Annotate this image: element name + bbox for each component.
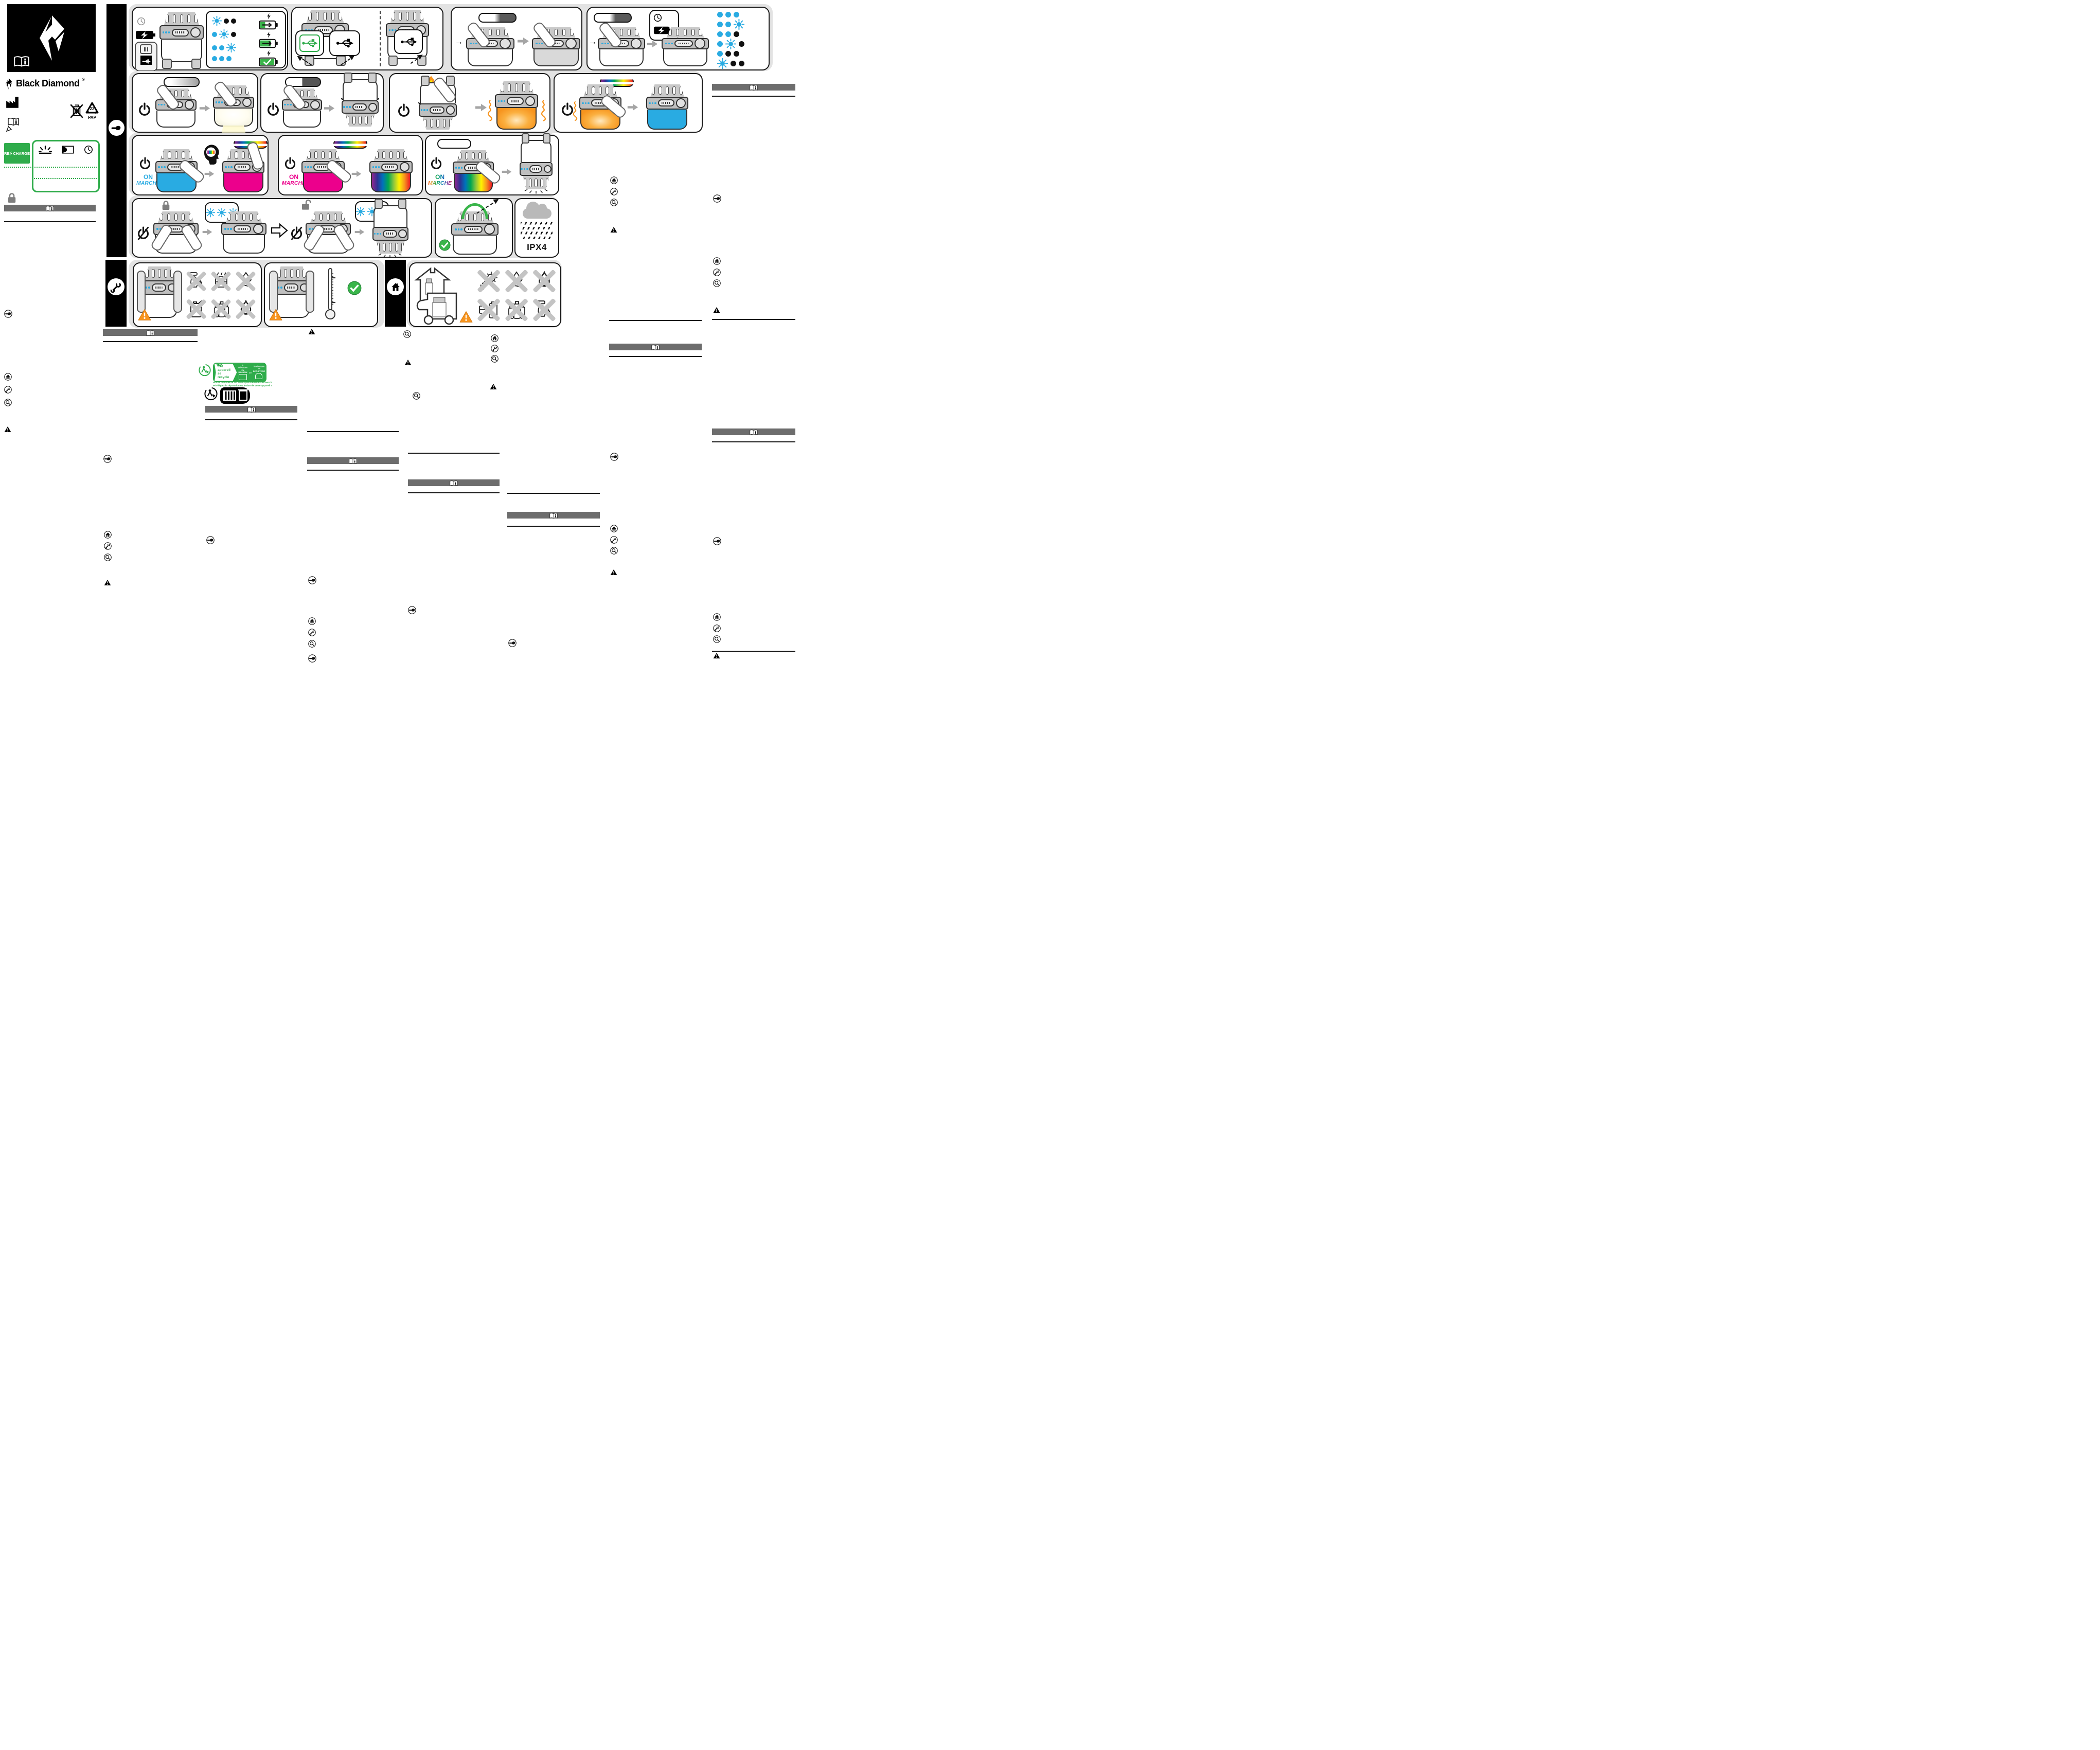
- panel-color-select: ON MARCHE: [132, 135, 269, 195]
- book-info-icon: [651, 344, 660, 350]
- warning-icon: [104, 579, 111, 586]
- hand-icon: [308, 576, 316, 584]
- section-header-bar: [712, 84, 795, 91]
- panel-handle: [435, 198, 513, 258]
- lantern-indicating: [662, 27, 709, 66]
- house-icon: [4, 373, 12, 381]
- power-icon: [430, 156, 442, 171]
- rule: [408, 453, 500, 454]
- next-arrow-icon: [646, 40, 659, 48]
- magnifier-icon: [4, 399, 12, 406]
- lock-icon: [7, 192, 16, 204]
- magnifier-icon: [610, 199, 618, 206]
- recycle-claim: FR Cet appareil se recycle: [215, 364, 237, 381]
- rule: [307, 431, 399, 432]
- read-manual-icon: [13, 56, 30, 68]
- house-icon: [713, 613, 721, 621]
- wrench-icon: [110, 281, 122, 293]
- no-liquids-icon: [235, 267, 257, 293]
- panel-color-mode: [554, 73, 703, 133]
- hand-icon: [308, 654, 316, 663]
- rain-cloud-icon: [523, 208, 551, 219]
- panel-dimming: →: [451, 7, 582, 70]
- no-solvents-icon: [210, 295, 233, 322]
- triman-paper-icon: [204, 387, 218, 401]
- house-icon: [610, 525, 618, 532]
- rule: [4, 221, 96, 222]
- hand-icon: [111, 122, 122, 134]
- divider: [380, 11, 381, 66]
- rule: [103, 341, 198, 342]
- battery-level-full: [258, 57, 279, 67]
- section-header-bar: [4, 205, 96, 211]
- usage-sidebar: [106, 4, 127, 257]
- magnifier-icon: [610, 547, 618, 555]
- magnifier-icon: [713, 279, 721, 287]
- pap-code: 22: [84, 106, 100, 111]
- pap-label: PAP: [84, 115, 100, 120]
- rule: [609, 356, 702, 357]
- ok-check-icon: [439, 239, 451, 251]
- brand-diamond-icon: [4, 78, 13, 90]
- house-icon: [104, 531, 112, 539]
- or-label: ou: [249, 371, 252, 374]
- no-fuel-icon: [185, 295, 208, 322]
- hand-icon: [4, 310, 12, 318]
- usb-out-callout: [329, 30, 360, 56]
- panel-storage-warnings: [409, 262, 561, 327]
- rule: [712, 319, 795, 320]
- power-off-icon: [290, 226, 303, 241]
- next-arrow-icon: [354, 228, 365, 236]
- instruction-sheet: Black Diamond ® 22 PAP RE CHARGE: [0, 0, 795, 663]
- wrench-icon: [713, 269, 721, 276]
- rule: [408, 492, 500, 493]
- usb-charge-in-icon: [301, 38, 318, 48]
- brand-name: Black Diamond: [16, 78, 80, 89]
- bolt-icon: [9, 150, 13, 156]
- section-header-bar: [103, 329, 198, 336]
- usb-out-icon: [335, 38, 354, 49]
- power-icon: [266, 102, 280, 117]
- charging-battery-icon: [135, 29, 156, 41]
- vehicle-storage-icon: [415, 290, 467, 325]
- warning-icon: [269, 309, 282, 321]
- next-arrow-icon: [202, 228, 213, 236]
- clock-icon: [653, 13, 662, 22]
- book-info-icon: [247, 406, 256, 413]
- panel-power-on: [132, 73, 258, 133]
- no-trash-bin-icon: [69, 103, 84, 119]
- book-info-icon: [549, 512, 558, 519]
- rule: [307, 470, 399, 471]
- storage-sidebar: [385, 260, 406, 327]
- next-arrow-icon: [517, 37, 530, 46]
- house-icon: [713, 257, 721, 265]
- hanging-loop: [137, 271, 146, 313]
- panel-usb-ports: [291, 7, 443, 70]
- section-header-bar: [712, 428, 795, 435]
- lantern-locked: [221, 211, 266, 254]
- ok-check-icon: [347, 281, 362, 295]
- light-rays-icon: [521, 188, 551, 194]
- book-info-icon: [45, 205, 55, 211]
- brightness-pill: [594, 13, 632, 23]
- magnifier-icon: [491, 355, 499, 363]
- empty-pill: [437, 139, 471, 149]
- cardboard-icon: [223, 390, 236, 401]
- hanging-loop: [306, 271, 314, 313]
- then-arrow-icon: [271, 223, 288, 238]
- brightness-pill: [478, 13, 517, 23]
- no-moisture-icon: [504, 266, 529, 294]
- lantern-candle: [495, 81, 538, 130]
- magnifier-icon: [104, 553, 112, 561]
- no-fire-icon: [531, 266, 557, 294]
- flicker-icon: [540, 99, 547, 122]
- clock-icon: [137, 17, 146, 26]
- recharge-re: RE: [4, 151, 9, 156]
- rule: [609, 320, 702, 321]
- hand-icon: [408, 606, 416, 614]
- battery-check-states: [717, 10, 744, 68]
- next-arrow-icon: [351, 170, 362, 178]
- lantern-rainbow: [369, 149, 413, 192]
- power-off-icon: [137, 226, 150, 241]
- warning-icon: [138, 309, 151, 321]
- arrow: →: [589, 38, 597, 47]
- power-icon: [139, 156, 151, 171]
- next-arrow-icon: [199, 104, 211, 113]
- panel-hang-light: [260, 73, 384, 133]
- paper-recycle-label: [220, 387, 250, 404]
- rule: [507, 493, 600, 494]
- magnifier-icon: [713, 635, 721, 643]
- rule: [712, 441, 795, 442]
- warning-icon: [404, 359, 412, 366]
- lantern: [159, 12, 204, 62]
- section-header-bar: [307, 457, 399, 464]
- panel-candle-mode: [389, 73, 550, 133]
- next-arrow-icon: [323, 104, 335, 113]
- lantern-off-hanging: [520, 140, 553, 189]
- panel-ipx4: IPX4: [514, 198, 559, 258]
- charge-indicator-callout: [206, 11, 286, 68]
- book-info-icon: [749, 84, 758, 91]
- next-arrow-icon: [627, 103, 639, 112]
- rainbow-pill: [333, 139, 367, 149]
- bin-icon: [239, 390, 247, 401]
- panel-temperature: [264, 262, 378, 327]
- panel-lockout: [132, 198, 432, 258]
- hand-icon: [206, 536, 215, 544]
- house-icon: [308, 617, 316, 625]
- rule: [205, 419, 297, 420]
- brightness-icon: [39, 145, 52, 154]
- no-sunlight-icon: [476, 266, 502, 294]
- maintenance-sidebar: [105, 260, 127, 327]
- lantern-unlocked: [372, 205, 408, 254]
- hold-clock-icon: [322, 238, 334, 250]
- panel-cleaning-warnings: [133, 262, 262, 327]
- lock-closed-icon: [162, 200, 170, 211]
- lantern-blue: [646, 84, 688, 130]
- wall-outlet-usb: [135, 42, 157, 72]
- next-arrow-icon: [501, 168, 512, 176]
- warning-icon: [308, 328, 315, 335]
- dropoff-store: À DÉPOSEREN MAGASIN: [238, 365, 247, 380]
- lantern-hanging: [342, 79, 379, 127]
- recharge-charge: CHARGE: [13, 151, 30, 156]
- triman-icon: [199, 364, 211, 377]
- hand-icon: [508, 639, 517, 647]
- section-header-bar: [609, 344, 702, 350]
- usb-icon: [142, 58, 151, 63]
- spec-divider: [32, 178, 97, 179]
- magnifier-icon: [403, 330, 411, 338]
- section-header-bar: [408, 479, 500, 486]
- spec-table: [32, 140, 100, 192]
- warning-icon: [610, 226, 617, 233]
- book-info-icon: [749, 429, 758, 435]
- no-fuel-storage-icon: [476, 295, 502, 323]
- wrench-icon: [713, 624, 721, 632]
- rule: [712, 96, 795, 97]
- lock-open-icon: [301, 199, 313, 211]
- pap-recycle-symbol: 22 PAP: [84, 102, 100, 121]
- wrench-icon: [104, 542, 112, 550]
- recharge-badge: RE CHARGE: [4, 143, 30, 164]
- hand-icon: [103, 455, 112, 463]
- warning-icon: [713, 307, 720, 313]
- no-grease-icon: [185, 267, 208, 293]
- usb-rear-callout: [394, 29, 423, 54]
- flicker-icon: [572, 100, 578, 122]
- panel-power-off: ON MARCHE: [425, 135, 559, 195]
- black-diamond-logo-icon: [36, 15, 68, 61]
- house-icon: [610, 176, 618, 184]
- wrench-icon: [4, 386, 12, 394]
- on-marche-label: ON MARCHE: [425, 174, 455, 186]
- brand-wordmark: Black Diamond ®: [4, 78, 85, 90]
- see-manual-icon: [5, 116, 21, 132]
- green-handle: [461, 203, 488, 219]
- panel-battery-check: →: [586, 7, 770, 70]
- book-info-icon: [348, 458, 358, 464]
- wrench-icon: [308, 629, 316, 636]
- rain-icon: [521, 222, 553, 239]
- hold-clock-icon: [170, 238, 182, 250]
- light-rays-icon: [373, 253, 406, 259]
- warning-icon: [4, 426, 11, 433]
- triman-recycle-label: FR Cet appareil se recycle À DÉPOSEREN M…: [213, 363, 266, 382]
- wrench-icon: [610, 536, 618, 544]
- dropoff-wastecenter: À DÉPOSEREN DÉCHÈTERIE: [253, 366, 265, 379]
- no-solvents-icon: [504, 295, 529, 323]
- hand-icon: [610, 453, 618, 461]
- arrow: →: [455, 38, 463, 47]
- beam-distance-icon: [62, 146, 74, 154]
- brightness-pill: [164, 77, 200, 87]
- book-info-icon: [146, 330, 155, 336]
- burn-time-icon: [84, 145, 93, 154]
- spec-divider: [4, 167, 97, 168]
- flicker-icon: [487, 99, 493, 122]
- rule: [507, 526, 600, 527]
- warning-icon: [459, 311, 473, 323]
- usb-icon: [400, 37, 417, 47]
- usb-in-callout: [295, 30, 324, 56]
- hanging-loop: [269, 271, 278, 313]
- magnifier-icon: [413, 392, 420, 400]
- collection-note: Points de collecte sur www.quefairedemes…: [213, 381, 272, 387]
- rule: [712, 651, 795, 652]
- section-header-bar: [507, 512, 600, 519]
- registered-mark: ®: [82, 78, 85, 82]
- warning-icon: [490, 383, 497, 390]
- next-arrow-icon: [204, 170, 215, 178]
- house-icon: [390, 281, 401, 293]
- power-icon: [138, 102, 151, 117]
- power-icon: [284, 156, 296, 171]
- hand-icon: [713, 537, 721, 545]
- magnifier-icon: [308, 640, 316, 648]
- warning-icon: [610, 569, 617, 576]
- no-fire-icon: [235, 295, 257, 322]
- next-arrow-icon: [474, 103, 488, 112]
- no-grease-icon: [531, 295, 557, 323]
- panel-color-cycle: ON MARCHE: [278, 135, 423, 195]
- ipx4-rating: IPX4: [515, 242, 558, 253]
- hand-icon: [713, 194, 721, 203]
- power-icon: [397, 103, 411, 118]
- lantern: [451, 211, 499, 255]
- choose-color-head-icon: [202, 144, 221, 166]
- thermometer-icon: [325, 266, 336, 322]
- hanging-loop: [173, 271, 182, 313]
- battery-level-mid: [258, 39, 279, 48]
- house-icon: [491, 334, 499, 342]
- section-header-bar: [205, 406, 297, 413]
- warning-icon: [713, 652, 720, 659]
- wrench-icon: [491, 345, 499, 352]
- logo-block: [7, 4, 96, 72]
- no-stove-heat-icon: [210, 267, 233, 293]
- book-info-icon: [449, 480, 458, 486]
- wrench-icon: [610, 188, 618, 195]
- battery-level-low: [258, 20, 279, 30]
- panel-charging: [132, 7, 288, 70]
- manufacturer-icon: [5, 96, 20, 109]
- flag-tag: FR: [217, 363, 222, 366]
